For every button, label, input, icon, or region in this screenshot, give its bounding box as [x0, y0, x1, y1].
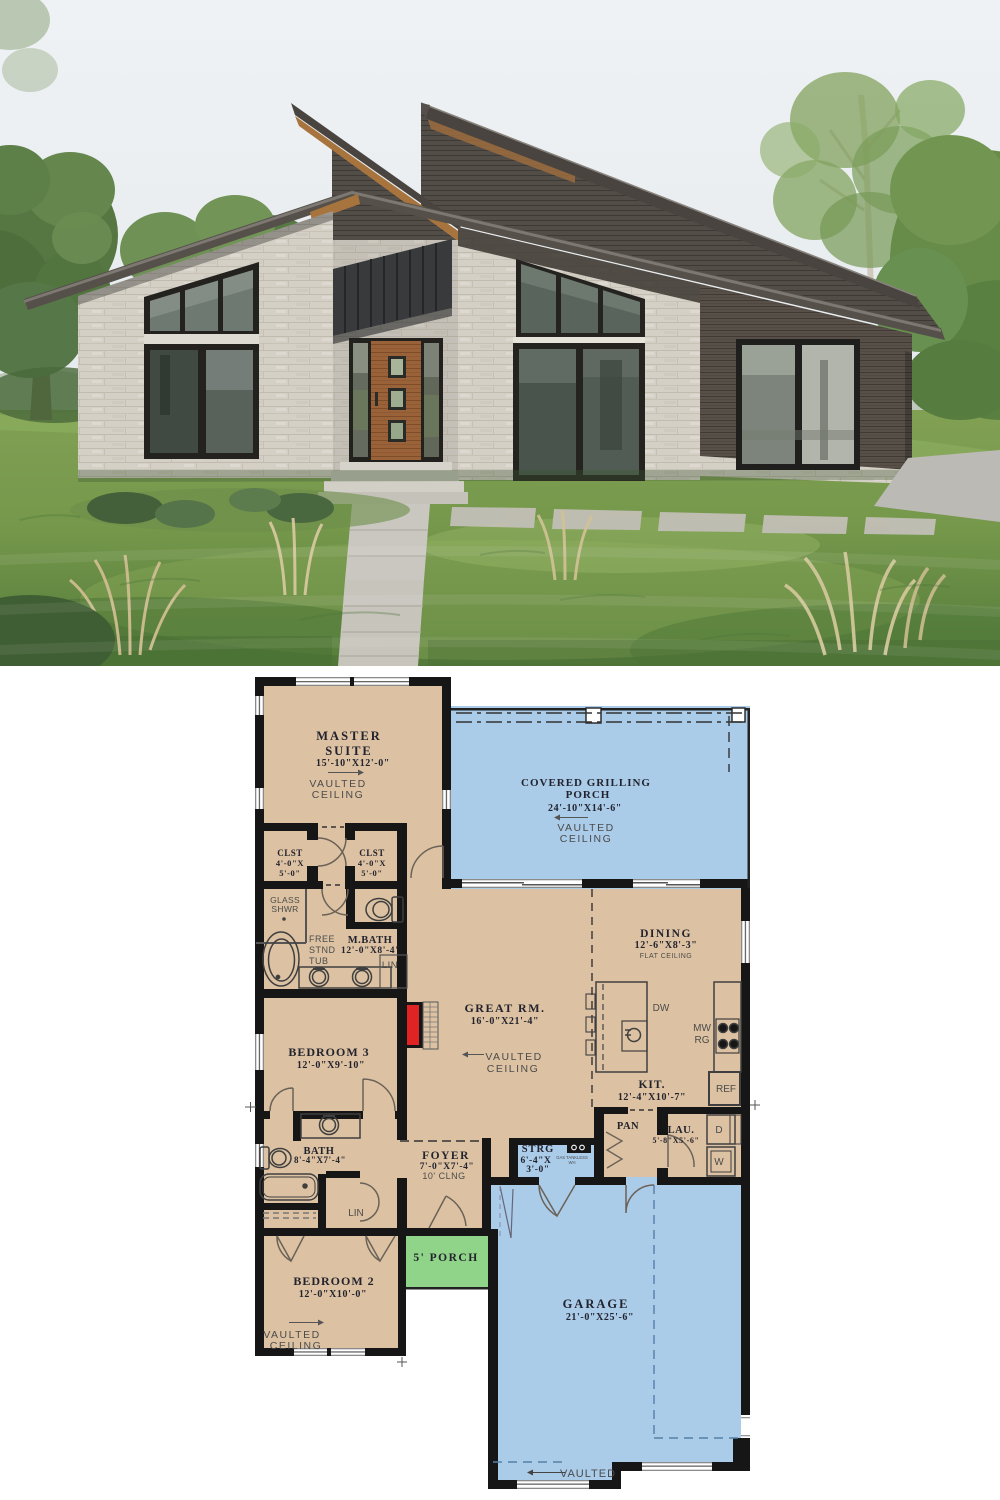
svg-text:5'-0": 5'-0"	[279, 868, 300, 878]
svg-text:SHWR: SHWR	[271, 904, 298, 914]
svg-text:5'-0": 5'-0"	[361, 868, 382, 878]
svg-text:12'-6"X8'-3": 12'-6"X8'-3"	[635, 940, 698, 951]
svg-text:CEILING: CEILING	[560, 833, 613, 845]
svg-text:CEILING: CEILING	[487, 1063, 540, 1075]
svg-text:12'-0"X10'-0": 12'-0"X10'-0"	[299, 1289, 367, 1300]
svg-text:LIN: LIN	[348, 1208, 364, 1219]
svg-text:PAN: PAN	[617, 1121, 639, 1132]
svg-text:VAULTED: VAULTED	[485, 1051, 542, 1063]
svg-text:BEDROOM 3: BEDROOM 3	[288, 1045, 369, 1059]
svg-text:24'-10"X14'-6": 24'-10"X14'-6"	[548, 803, 622, 814]
svg-text:STND: STND	[309, 945, 336, 955]
svg-text:10' CLNG: 10' CLNG	[422, 1171, 465, 1181]
svg-text:12'-0"X9'-10": 12'-0"X9'-10"	[297, 1060, 365, 1071]
svg-text:4'-0"X: 4'-0"X	[276, 858, 304, 868]
svg-text:MW: MW	[693, 1023, 711, 1034]
svg-text:12'-4"X10'-7": 12'-4"X10'-7"	[618, 1092, 686, 1103]
svg-text:4'-0"X: 4'-0"X	[358, 858, 386, 868]
svg-text:5'-8"X5'-6": 5'-8"X5'-6"	[652, 1136, 699, 1145]
svg-text:DINING: DINING	[640, 928, 692, 940]
svg-text:LAU.: LAU.	[668, 1125, 695, 1136]
svg-text:D: D	[715, 1125, 722, 1136]
svg-text:COVERED GRILLING: COVERED GRILLING	[521, 777, 651, 789]
svg-text:CLST: CLST	[359, 848, 385, 858]
svg-text:MASTER: MASTER	[316, 729, 381, 743]
svg-text:FREE: FREE	[309, 934, 335, 944]
svg-text:SUITE: SUITE	[325, 744, 373, 758]
svg-text:12'-0"X8'-4": 12'-0"X8'-4"	[341, 946, 401, 956]
svg-text:21'-0"X25'-6": 21'-0"X25'-6"	[566, 1312, 634, 1323]
svg-text:3'-0": 3'-0"	[526, 1165, 550, 1175]
svg-text:GREAT RM.: GREAT RM.	[464, 1001, 545, 1015]
svg-text:FOYER: FOYER	[422, 1150, 470, 1162]
svg-text:STRG: STRG	[522, 1144, 555, 1155]
svg-text:LIN: LIN	[382, 960, 398, 971]
svg-text:KIT.: KIT.	[638, 1079, 665, 1091]
svg-text:M.BATH: M.BATH	[348, 935, 393, 946]
svg-text:W: W	[714, 1157, 724, 1168]
svg-text:RG: RG	[695, 1035, 710, 1046]
svg-text:WH: WH	[569, 1160, 576, 1165]
svg-text:BEDROOM 2: BEDROOM 2	[293, 1274, 374, 1288]
svg-text:FLAT CEILING: FLAT CEILING	[640, 953, 692, 960]
svg-text:PORCH: PORCH	[566, 789, 611, 801]
svg-text:CLST: CLST	[277, 848, 303, 858]
svg-text:16'-0"X21'-4": 16'-0"X21'-4"	[471, 1016, 539, 1027]
svg-text:VAULTED: VAULTED	[560, 1468, 616, 1480]
svg-text:5' PORCH: 5' PORCH	[413, 1252, 478, 1264]
svg-text:8'-4"X7'-4": 8'-4"X7'-4"	[294, 1155, 346, 1165]
svg-text:15'-10"X12'-0": 15'-10"X12'-0"	[316, 758, 390, 769]
svg-text:TUB: TUB	[309, 956, 329, 966]
svg-text:CEILING: CEILING	[270, 1340, 323, 1352]
svg-text:GARAGE: GARAGE	[563, 1297, 630, 1311]
svg-text:CEILING: CEILING	[312, 789, 365, 801]
svg-text:DW: DW	[653, 1003, 670, 1014]
svg-text:REF: REF	[716, 1084, 736, 1095]
